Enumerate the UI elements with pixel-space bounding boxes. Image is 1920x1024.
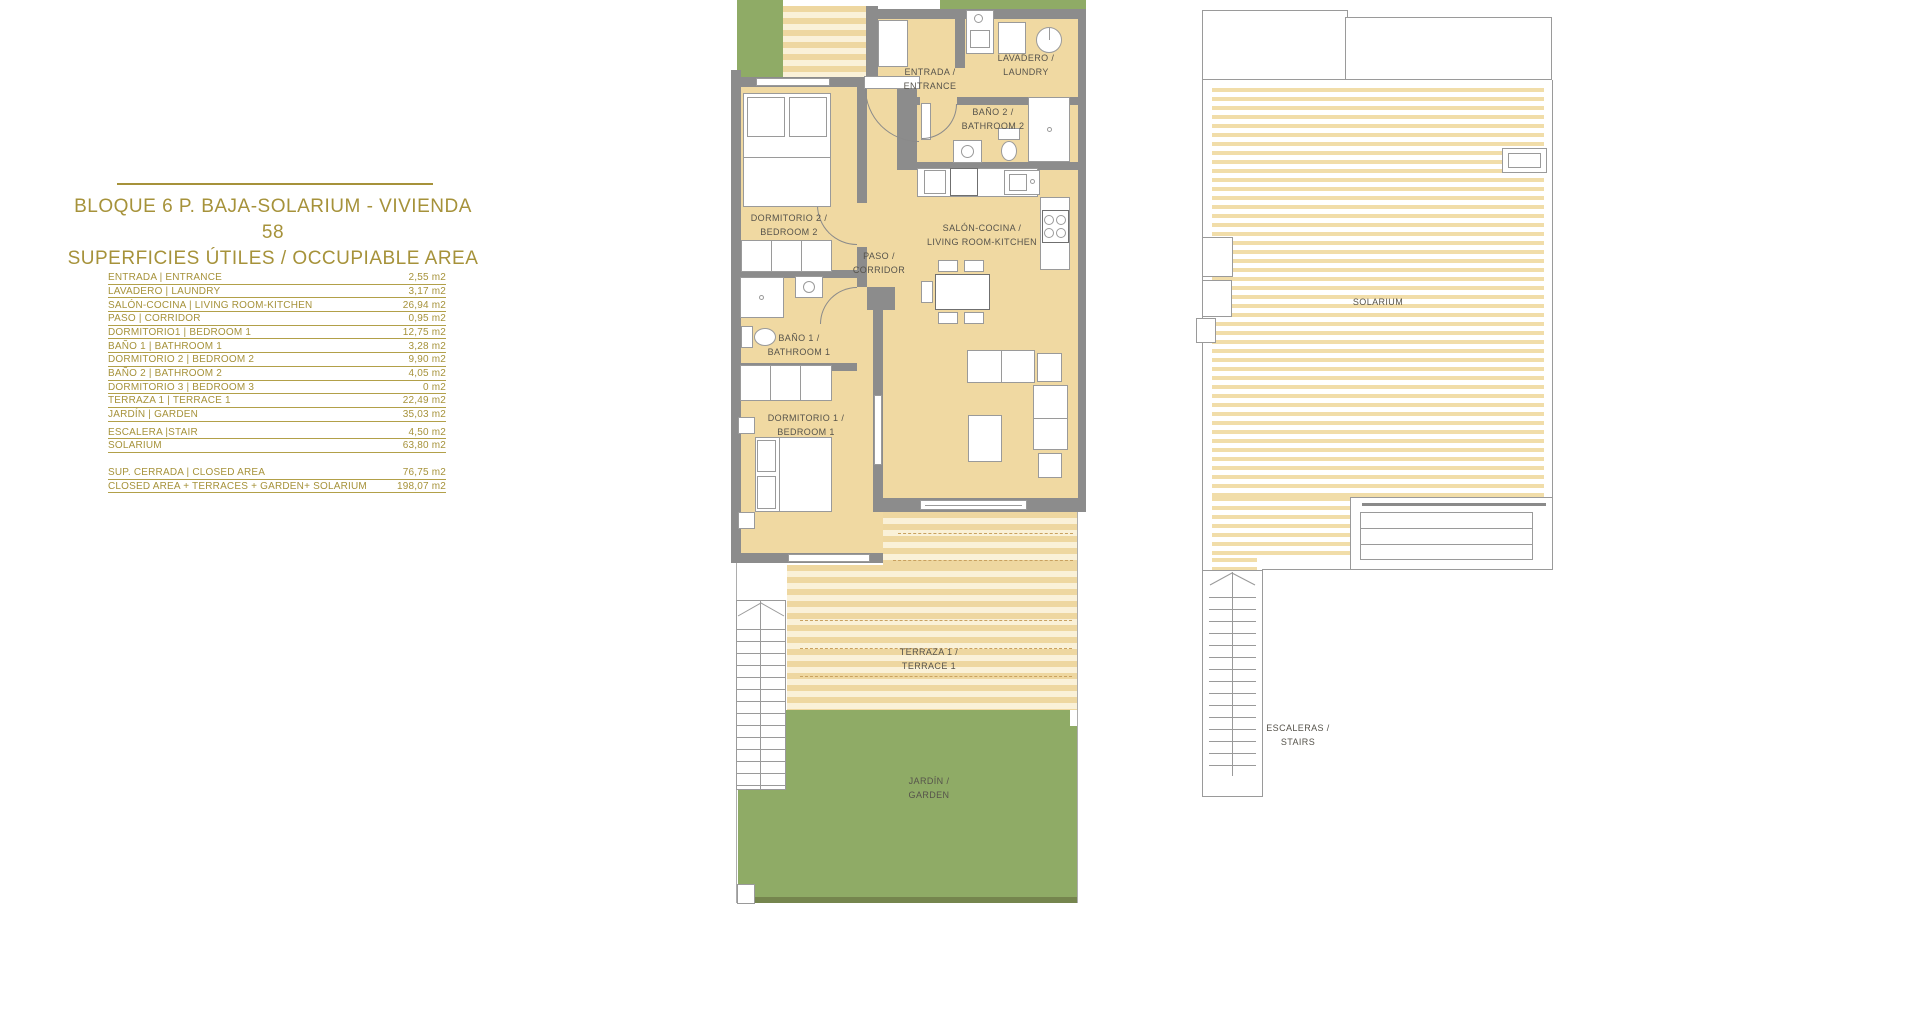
table-row-summary: SUP. CERRADA | CLOSED AREA76,75 m2 [108,466,446,480]
table-row: DORMITORIO1 | BEDROOM 112,75 m2 [108,326,446,340]
roof-box [1345,17,1552,80]
pillow [757,476,776,509]
table-row: JARDÍN | GARDEN35,03 m2 [108,408,446,422]
table-row: BAÑO 2 | BATHROOM 24,05 m2 [108,367,446,381]
sofa-cushion-line [1001,350,1002,383]
stair-steps [737,618,785,789]
title-line-1: BLOQUE 6 P. BAJA-SOLARIUM - VIVIENDA 58 [63,194,483,246]
sink-basin [803,281,815,293]
stair-rail [1232,572,1233,776]
sofa-cushion-line [1033,418,1068,419]
sofa-seat [1038,453,1062,478]
title-line-2: SUPERFICIES ÚTILES / OCCUPIABLE AREA [63,246,483,272]
dining-chair [964,260,984,272]
sliding-window [920,500,1027,510]
door-slit [874,395,882,465]
notch-boundary [1350,497,1351,569]
room-label-entrance: ENTRADA /ENTRANCE [904,66,957,93]
room-label-stairs: ESCALERAS /STAIRS [1266,722,1329,749]
edge-window-inner [1508,153,1541,168]
table-row: DORMITORIO 3 | BEDROOM 30 m2 [108,381,446,395]
table-row: ESCALERA |STAIR4,50 m2 [108,426,446,440]
terrace-joint [800,676,1072,677]
dining-table [935,274,990,310]
plot-boundary [1262,569,1552,570]
wardrobe [741,240,832,272]
dining-chair [921,281,933,303]
garden-edge [738,897,1078,903]
areas-table: ENTRADA | ENTRANCE2,55 m2 LAVADERO | LAU… [108,271,446,453]
edge-box [1196,318,1216,343]
toilet-bowl [1001,141,1017,161]
room-label-garden: JARDÍN /GARDEN [909,775,950,802]
coffee-table [968,415,1002,462]
areas-summary: SUP. CERRADA | CLOSED AREA76,75 m2 CLOSE… [108,466,446,493]
pergola-beam [1362,503,1546,506]
upper-terrace-strip [783,6,866,77]
wall [857,87,867,203]
stair-rail [760,601,761,789]
floor-plan-sheet: BLOQUE 6 P. BAJA-SOLARIUM - VIVIENDA 58 … [0,0,1920,1024]
terrace-floor [787,565,1078,710]
nightstand [738,417,755,434]
plot-boundary [1552,80,1553,570]
kitchen-cabinet [924,170,946,194]
burner [1056,215,1066,225]
notch-boundary [1350,497,1552,498]
room-label-living: SALÓN-COCINA /LIVING ROOM-KITCHEN [927,222,1037,249]
laundry-unit [998,22,1026,54]
oven [950,168,978,196]
terrace-joint [893,560,1073,561]
wardrobe-divider [800,366,801,400]
dining-chair [938,312,958,324]
edge-box [1202,280,1232,317]
title-rule [117,183,433,185]
wall [955,19,965,68]
nightstand [738,512,755,529]
terrace-joint [800,620,1072,621]
wardrobe-divider [771,241,772,271]
edge-box [1202,237,1233,277]
room-label-laundry: LAVADERO /LAUNDRY [998,52,1055,79]
solarium-deck [1212,497,1350,558]
wardrobe-divider [801,241,802,271]
kitchen-sink-basin [1009,174,1027,191]
terrace-floor [883,512,1078,565]
dining-chair [964,312,984,324]
room-label-bedroom1: DORMITORIO 1 /BEDROOM 1 [768,412,844,439]
toilet-tank [741,326,753,348]
table-row: LAVADERO | LAUNDRY3,17 m2 [108,285,446,299]
garden [738,710,1078,903]
room-label-bathroom2: BAÑO 2 /BATHROOM 2 [962,106,1025,133]
table-row: SALÓN-COCINA | LIVING ROOM-KITCHEN26,94 … [108,298,446,312]
table-row: TERRAZA 1 | TERRACE 122,49 m2 [108,394,446,408]
window [788,554,870,562]
table-row: DORMITORIO 2 | BEDROOM 29,90 m2 [108,353,446,367]
pillow [757,440,776,472]
bench-line [1360,544,1533,545]
roof-box [1202,10,1348,80]
shower-drain [759,295,764,300]
top-garden-strip [940,0,1086,9]
page-title: BLOQUE 6 P. BAJA-SOLARIUM - VIVIENDA 58 … [63,194,483,272]
sofa-corner [1037,353,1062,382]
bed-line [779,437,780,512]
table-row: BAÑO 1 | BATHROOM 13,28 m2 [108,339,446,353]
burner [1044,215,1054,225]
room-label-solarium: SOLARIUM [1353,296,1403,310]
terrace-joint [898,533,1073,534]
pillow [789,97,827,137]
table-row-summary: CLOSED AREA + TERRACES + GARDEN+ SOLARIU… [108,480,446,494]
stair-direction-arrow [1209,571,1256,586]
pillow [747,97,785,137]
faucet [1030,179,1035,184]
sink-basin [961,145,974,158]
window [756,78,830,86]
stair-direction-arrow [737,601,785,617]
wardrobe [740,365,832,401]
wall [1078,9,1086,512]
solarium-deck [1212,88,1544,497]
burner [1044,228,1054,238]
room-label-terrace: TERRAZA 1 /TERRACE 1 [900,646,958,673]
bench-line [1360,528,1533,529]
closet [878,20,908,67]
plot-boundary [1077,512,1078,903]
bench [1360,512,1533,560]
burner [1056,228,1066,238]
wall [867,287,895,310]
upper-garden-patch [737,0,783,77]
table-row: SOLARIUM63,80 m2 [108,439,446,453]
heater-mark [1049,28,1050,40]
bed-line [743,157,831,158]
washer-dial [974,14,983,23]
washing-machine-drum [970,30,990,48]
room-label-corridor: PASO /CORRIDOR [853,250,905,277]
table-row: PASO | CORRIDOR0,95 m2 [108,312,446,326]
room-label-bedroom2: DORMITORIO 2 /BEDROOM 2 [751,212,827,239]
wardrobe-divider [770,366,771,400]
room-label-bathroom1: BAÑO 1 /BATHROOM 1 [768,332,831,359]
dining-chair [938,260,958,272]
shower-drain [1047,127,1052,132]
table-row: ENTRADA | ENTRANCE2,55 m2 [108,271,446,285]
garden-box [737,884,755,904]
